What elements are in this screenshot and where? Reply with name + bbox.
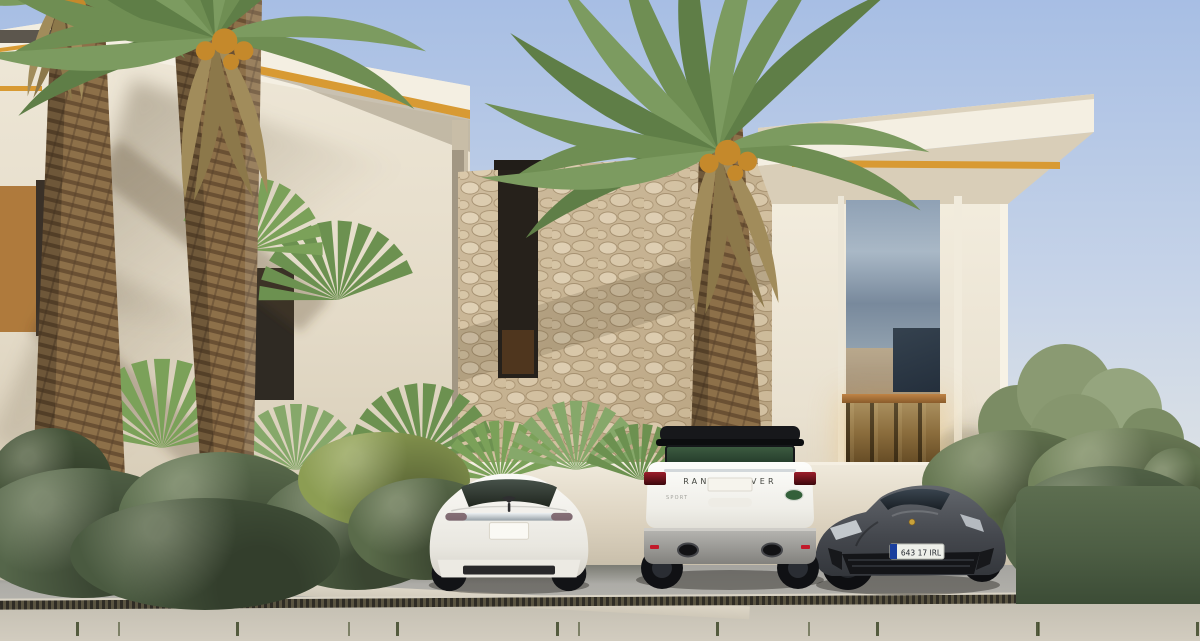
exhaust-pipe (762, 544, 782, 557)
land-rover-badge-icon (785, 490, 803, 501)
villa-exterior-scene: 643 17 IRL RANGE ROVER SPORT (0, 0, 1200, 641)
porsche-car: 643 17 IRL (808, 452, 1013, 602)
license-plate (489, 523, 528, 540)
plate-eu-band (890, 544, 897, 559)
bush (70, 498, 340, 610)
palm-crown (0, 0, 937, 325)
license-plate (708, 478, 752, 491)
reflector (801, 545, 810, 549)
sport-badge: SPORT (666, 495, 688, 501)
roof-spoiler (656, 439, 804, 446)
tesla-car (416, 454, 602, 601)
tail-light (551, 513, 573, 521)
range-rover-car: RANGE ROVER SPORT (624, 422, 836, 596)
right-hedge (1016, 486, 1200, 604)
plate-number: 643 17 IRL (901, 549, 942, 558)
exhaust-pipe (678, 544, 698, 557)
rear-bumper (644, 528, 816, 564)
porsche-crest-icon (909, 519, 915, 525)
tail-light (445, 513, 467, 521)
reflector (650, 545, 659, 549)
license-plate: 643 17 IRL (890, 544, 944, 559)
diffuser (463, 566, 555, 575)
tailgate-handle (708, 498, 752, 507)
